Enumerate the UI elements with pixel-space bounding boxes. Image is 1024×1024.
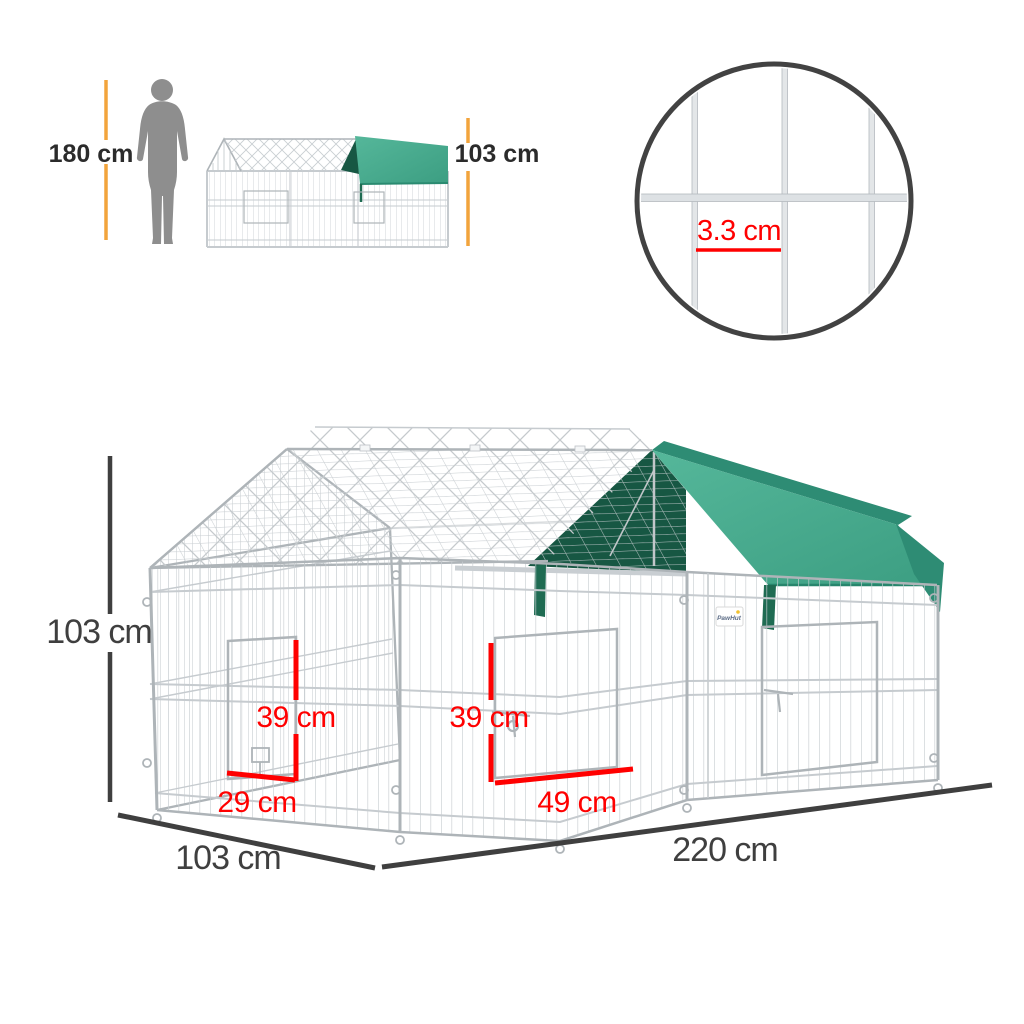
- mesh-detail-circle: 3.3 cm: [634, 58, 916, 346]
- mesh-wire-vertical: [692, 58, 698, 346]
- center-door-width-label: 49 cm: [537, 786, 616, 819]
- height-dimension-label: 103 cm: [46, 613, 152, 651]
- person-silhouette: [137, 79, 188, 244]
- cage-cover-height-label: 103 cm: [455, 140, 540, 168]
- center-door-height-label: 39 cm: [449, 701, 528, 734]
- mesh-wire-horizontal: [634, 194, 916, 202]
- scale-comparison: 180 cm: [49, 79, 540, 247]
- person-height-label: 180 cm: [49, 140, 134, 168]
- main-cage: PawHut 103 cm 103 cm 220 cm: [46, 427, 992, 877]
- infographic-canvas: 180 cm: [0, 0, 1024, 1024]
- roof-back-lattice: [287, 427, 652, 450]
- product-dimension-infographic: 180 cm: [0, 0, 1024, 1024]
- left-door-width-label: 29 cm: [217, 786, 296, 819]
- mesh-wire-vertical: [782, 58, 788, 346]
- left-door-height-label: 39 cm: [256, 701, 335, 734]
- mesh-spacing-label: 3.3 cm: [697, 215, 781, 247]
- mini-cage: [207, 136, 448, 247]
- roof-ridge: [287, 449, 652, 450]
- depth-dimension-label: 103 cm: [175, 839, 281, 877]
- brand-logo-paw-icon: [736, 610, 740, 614]
- brand-sticker: PawHut: [716, 607, 743, 626]
- brand-logo-text: PawHut: [717, 615, 742, 622]
- roof-mesh: [150, 445, 686, 574]
- length-dimension-label: 220 cm: [672, 831, 778, 869]
